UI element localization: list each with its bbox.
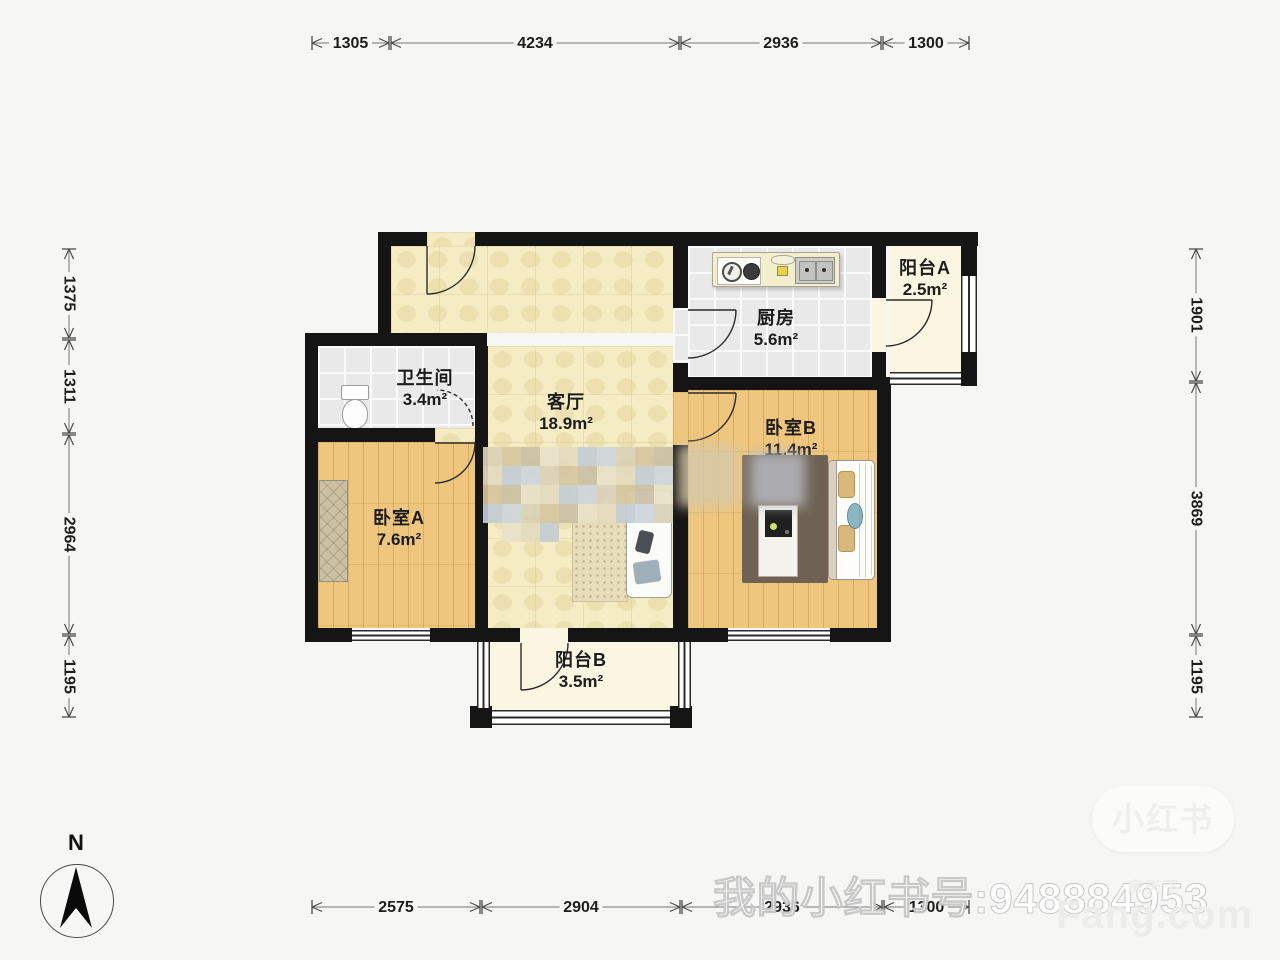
mosaic-cell <box>578 504 597 523</box>
mosaic-cell <box>559 447 578 466</box>
room-label-balconyA: 阳台A 2.5m² <box>865 258 985 300</box>
svg-text:2904: 2904 <box>563 899 599 916</box>
dimension-label: 4234 <box>390 33 680 53</box>
mosaic-cell <box>616 466 635 485</box>
room-label-bedroomA: 卧室A 7.6m² <box>339 508 459 550</box>
room-label-kitchen: 厨房 5.6m² <box>716 308 836 350</box>
mosaic-cell <box>597 447 616 466</box>
dimension-label: 1311 <box>59 339 79 434</box>
dimension-label: 3869 <box>1186 382 1206 635</box>
mosaic-cell <box>635 504 654 523</box>
mosaic-cell <box>521 504 540 523</box>
mosaic-cell <box>578 447 597 466</box>
mosaic-cell <box>559 485 578 504</box>
bedroomA-door-arc <box>435 443 475 483</box>
mosaic-cell <box>635 447 654 466</box>
svg-text:2964: 2964 <box>61 517 78 553</box>
svg-text:2936: 2936 <box>763 35 799 52</box>
mosaic-cell <box>521 485 540 504</box>
svg-text:1300: 1300 <box>908 35 944 52</box>
dimension-label: 2575 <box>311 897 481 917</box>
mosaic-cell <box>502 466 521 485</box>
mosaic-cell <box>578 485 597 504</box>
mosaic-cell <box>521 523 540 542</box>
svg-text:1311: 1311 <box>61 369 78 404</box>
dimension-label: 1195 <box>59 635 79 718</box>
mosaic-cell <box>483 504 502 523</box>
balconyA-door-arc <box>886 300 932 346</box>
mosaic-cell <box>540 485 559 504</box>
blurred-watermark-patch <box>750 452 805 507</box>
mosaic-cell <box>559 504 578 523</box>
svg-text:4234: 4234 <box>517 35 553 52</box>
dimension-label: 2904 <box>481 897 681 917</box>
mosaic-cell <box>635 485 654 504</box>
mosaic-cell <box>540 466 559 485</box>
dimension-label: 1375 <box>59 248 79 339</box>
compass-north-label: N <box>30 830 122 856</box>
svg-text:1375: 1375 <box>61 276 78 312</box>
dimension-label: 1305 <box>311 33 390 53</box>
mosaic-cell <box>654 447 673 466</box>
svg-text:1305: 1305 <box>333 35 369 52</box>
mosaic-cell <box>635 466 654 485</box>
dimension-label: 2936 <box>680 33 882 53</box>
mosaic-cell <box>502 447 521 466</box>
mosaic-cell <box>502 504 521 523</box>
mosaic-cell <box>597 466 616 485</box>
blurred-watermark-patch <box>678 445 738 507</box>
mosaic-cell <box>483 466 502 485</box>
svg-text:2575: 2575 <box>378 899 414 916</box>
mosaic-cell <box>597 504 616 523</box>
svg-text:1195: 1195 <box>1188 659 1205 694</box>
room-label-balconyB: 阳台B 3.5m² <box>521 650 641 692</box>
watermark-fang-logo: Fang.com <box>1056 893 1253 938</box>
mosaic-cell <box>654 466 673 485</box>
mosaic-cell <box>559 466 578 485</box>
room-label-living: 客厅 18.9m² <box>506 392 626 434</box>
dimension-label: 1901 <box>1186 248 1206 382</box>
svg-text:1901: 1901 <box>1188 297 1205 333</box>
mosaic-cell <box>483 447 502 466</box>
mosaic-cell <box>521 447 540 466</box>
mosaic-cell <box>654 485 673 504</box>
watermark-fang-chinese: 房天下 <box>1128 876 1182 897</box>
compass: N <box>30 830 122 942</box>
compass-needle-icon <box>40 864 112 936</box>
bedroomB-door-arc <box>688 393 736 441</box>
mosaic-cell <box>540 523 559 542</box>
room-label-bathroom: 卫生间 3.4m² <box>365 368 485 410</box>
svg-text:1195: 1195 <box>61 659 78 694</box>
mosaic-cell <box>616 447 635 466</box>
mosaic-cell <box>616 485 635 504</box>
mosaic-cell <box>483 485 502 504</box>
dimension-label: 2964 <box>59 434 79 635</box>
mosaic-cell <box>502 523 521 542</box>
mosaic-cell <box>540 504 559 523</box>
mosaic-cell <box>578 466 597 485</box>
watermark-xiaohongshu-badge: 小红书 <box>1092 786 1234 852</box>
mosaic-cell <box>654 504 673 523</box>
floor-plan: 客厅 18.9m² 厨房 5.6m² 卫生间 3.4m² 卧室A 7.6m² 卧… <box>0 0 1280 960</box>
mosaic-cell <box>597 485 616 504</box>
mosaic-cell <box>521 466 540 485</box>
entrance-door-arc <box>427 246 475 294</box>
mosaic-cell <box>502 485 521 504</box>
mosaic-cell <box>540 447 559 466</box>
dimension-label: 1300 <box>882 33 970 53</box>
dimension-label: 1195 <box>1186 635 1206 718</box>
svg-text:3869: 3869 <box>1188 491 1205 527</box>
mosaic-cell <box>616 504 635 523</box>
